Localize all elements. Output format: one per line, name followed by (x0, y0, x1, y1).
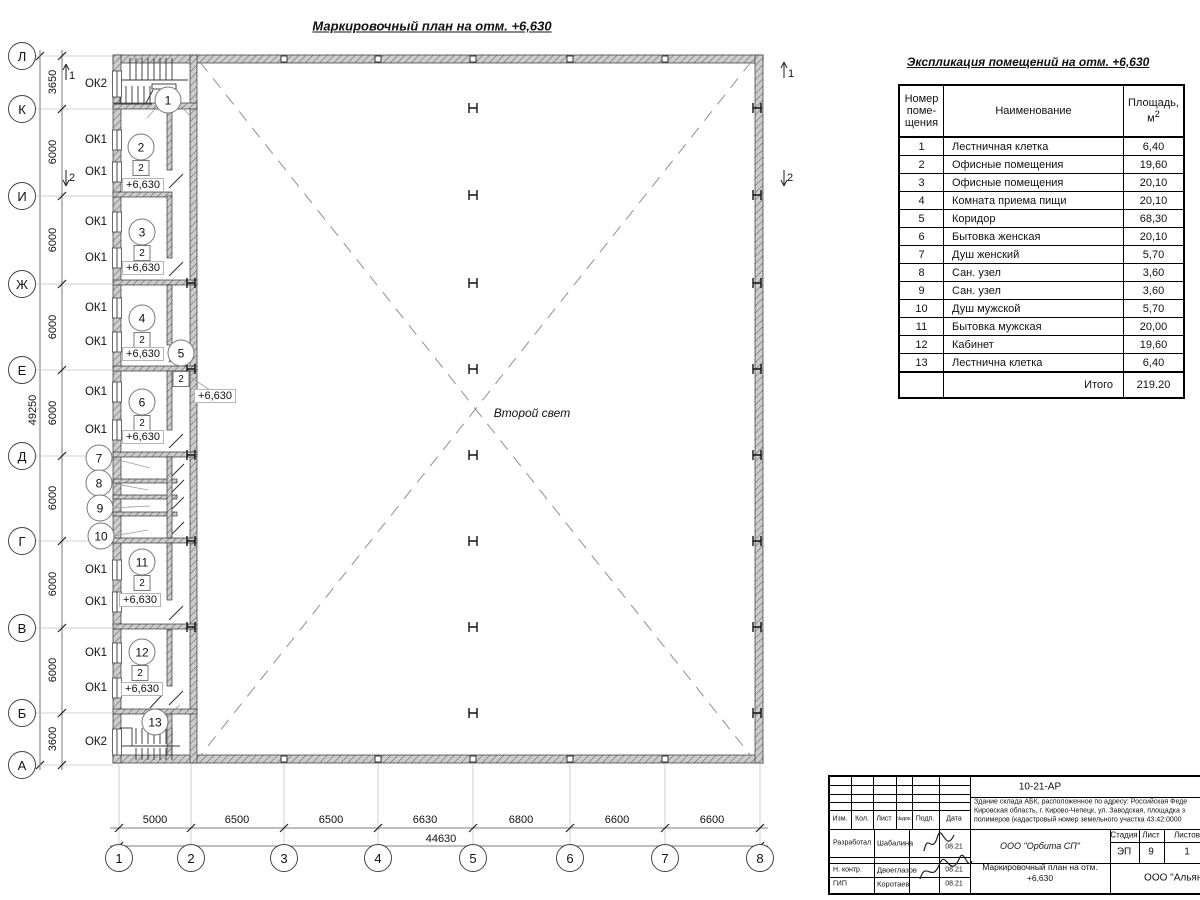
dimension-value: 6500 (225, 814, 249, 826)
room-name: Офисные помещения (944, 156, 1124, 174)
room-number: 11 (899, 318, 944, 336)
sheets-header: Листов (1174, 831, 1200, 840)
elevation-mark: +6,630 (194, 389, 236, 403)
window-mark-label: ОК1 (85, 647, 107, 659)
window-mark-label: ОК1 (85, 424, 107, 436)
rev-header-list: Лист (876, 816, 891, 823)
axis-label-8: 8 (746, 844, 774, 872)
explication-row: 12Кабинет19,60 (899, 336, 1184, 354)
window-mark-label: ОК1 (85, 336, 107, 348)
sheets-value: 1 (1184, 847, 1190, 858)
room-name: Лестнична клетка (944, 354, 1124, 373)
axis-label-И: И (8, 182, 36, 210)
total-label: Итого (944, 372, 1124, 398)
room-area: 5,70 (1124, 246, 1185, 264)
axis-label-6: 6 (556, 844, 584, 872)
dimension-value: 6630 (413, 814, 437, 826)
explication-row: 3Офисные помещения20,10 (899, 174, 1184, 192)
door-type-mark: 2 (133, 160, 150, 176)
window-mark-label: ОК1 (85, 302, 107, 314)
dimension-value: 6800 (509, 814, 533, 826)
sheet-title-line2: +6,630 (1027, 873, 1053, 883)
explication-row: 5Коридор68,30 (899, 210, 1184, 228)
dimension-value: 6500 (319, 814, 343, 826)
sheet-title-line1: Маркировочный план на отм. (982, 862, 1098, 872)
rev-header-data: Дата (946, 816, 962, 823)
second-light-label: Второй свет (494, 406, 570, 420)
section-mark-label: 1 (69, 70, 75, 82)
axis-label-А: А (8, 751, 36, 779)
room-mark-6: 6 (129, 389, 156, 416)
room-area: 19,60 (1124, 156, 1185, 174)
room-name: Сан. узел (944, 264, 1124, 282)
stage-header: Стадия (1110, 831, 1137, 840)
window-mark-label: ОК1 (85, 682, 107, 694)
room-mark-10: 10 (88, 523, 115, 550)
explication-row: 6Бытовка женская20,10 (899, 228, 1184, 246)
explication-title: Экспликация помещений на отм. +6,630 (907, 55, 1150, 69)
explication-row: 4Комната приема пищи20,10 (899, 192, 1184, 210)
dimension-total: 49250 (27, 395, 39, 426)
door-type-mark: 2 (134, 245, 151, 261)
window-mark-label: ОК1 (85, 216, 107, 228)
room-number: 8 (899, 264, 944, 282)
room-mark-12: 12 (129, 639, 156, 666)
room-number: 9 (899, 282, 944, 300)
room-area: 20,10 (1124, 174, 1185, 192)
explication-row: 9Сан. узел3,60 (899, 282, 1184, 300)
dimension-value: 3600 (47, 727, 59, 751)
room-mark-3: 3 (129, 219, 156, 246)
signature-icon (918, 827, 988, 893)
axis-label-4: 4 (364, 844, 392, 872)
dimension-value: 6000 (47, 401, 59, 425)
explication-row: 8Сан. узел3,60 (899, 264, 1184, 282)
elevation-mark: +6,630 (122, 347, 164, 361)
room-mark-2: 2 (128, 134, 155, 161)
room-name: Душ мужской (944, 300, 1124, 318)
room-number: 4 (899, 192, 944, 210)
dimension-total: 44630 (426, 833, 457, 845)
window-mark-label: ОК1 (85, 564, 107, 576)
room-mark-11: 11 (129, 549, 156, 576)
axis-label-В: В (8, 614, 36, 642)
axis-label-5: 5 (459, 844, 487, 872)
room-area: 20,00 (1124, 318, 1185, 336)
project-address-line3: полимеров (кадастровый номер земельного … (974, 817, 1182, 824)
section-mark-label: 1 (788, 68, 794, 80)
room-area: 19,60 (1124, 336, 1185, 354)
room-number: 2 (899, 156, 944, 174)
axis-label-Е: Е (8, 356, 36, 384)
elevation-mark: +6,630 (122, 430, 164, 444)
section-mark-label: 2 (787, 172, 793, 184)
header-line: Номер (904, 93, 939, 105)
door-type-mark: 2 (134, 415, 151, 431)
header-line: поме- (904, 105, 939, 117)
sheet-header: Лист (1142, 831, 1159, 840)
room-number: 6 (899, 228, 944, 246)
axis-label-3: 3 (270, 844, 298, 872)
elevation-mark: +6,630 (121, 682, 163, 696)
rev-header-ndok: №док. (896, 816, 912, 822)
room-area: 20,10 (1124, 192, 1185, 210)
door-type-mark: 2 (134, 575, 151, 591)
axis-label-1: 1 (105, 844, 133, 872)
rev-header-izm: Изм. (833, 816, 848, 823)
explication-row: 2Офисные помещения19,60 (899, 156, 1184, 174)
room-mark-9: 9 (87, 495, 114, 522)
plan-title: Маркировочный план на отм. +6,630 (312, 19, 551, 34)
role-developer: Разработал (833, 840, 871, 847)
elevation-mark: +6,630 (119, 593, 161, 607)
room-name: Кабинет (944, 336, 1124, 354)
role-ncontrol-name: Двоеглазов (877, 866, 917, 875)
axis-label-2: 2 (177, 844, 205, 872)
window-mark-label: ОК2 (85, 78, 107, 90)
room-number: 12 (899, 336, 944, 354)
header-line: щения (904, 117, 939, 129)
axis-label-К: К (8, 95, 36, 123)
dimension-value: 6000 (47, 228, 59, 252)
rev-header-podp: Подп. (916, 816, 935, 823)
room-name: Душ женский (944, 246, 1124, 264)
project-address-line2: Кировская область, г. Кирово-Чепецк, ул.… (974, 808, 1185, 815)
sheet-value: 9 (1148, 847, 1154, 858)
room-number: 3 (899, 174, 944, 192)
window-mark-label: ОК1 (85, 134, 107, 146)
role-gip-name: Коротаев (877, 880, 909, 889)
room-mark-1: 1 (155, 87, 182, 114)
room-name: Офисные помещения (944, 174, 1124, 192)
elevation-mark: +6,630 (122, 178, 164, 192)
window-mark-label: ОК2 (85, 736, 107, 748)
room-area: 5,70 (1124, 300, 1185, 318)
room-number: 7 (899, 246, 944, 264)
dimension-value: 6600 (700, 814, 724, 826)
project-address-line1: Здание склада АБК, расположенное по адре… (974, 799, 1187, 806)
header-line: м2 (1128, 109, 1179, 125)
section-mark-label: 2 (69, 172, 75, 184)
document-number: 10-21-АР (1019, 782, 1061, 793)
door-type-mark: 2 (173, 371, 190, 387)
column-header-number: Номер поме- щения (899, 85, 944, 137)
room-name: Бытовка женская (944, 228, 1124, 246)
room-area: 6,40 (1124, 137, 1185, 156)
room-mark-5: 5 (168, 340, 195, 367)
room-name: Сан. узел (944, 282, 1124, 300)
axis-label-Б: Б (8, 699, 36, 727)
area-unit: м (1147, 113, 1155, 125)
room-mark-8: 8 (86, 470, 113, 497)
explication-row: 7Душ женский5,70 (899, 246, 1184, 264)
axis-label-Г: Г (8, 527, 36, 555)
role-ncontrol: Н. контр. (833, 867, 862, 874)
window-mark-label: ОК1 (85, 596, 107, 608)
door-type-mark: 2 (132, 665, 149, 681)
room-number: 13 (899, 354, 944, 373)
explication-row: 13Лестнична клетка6,40 (899, 354, 1184, 373)
rev-header-kol: Кол. (855, 816, 869, 823)
room-area: 68,30 (1124, 210, 1185, 228)
explication-row: 1Лестничная клетка6,40 (899, 137, 1184, 156)
axis-label-Д: Д (8, 442, 36, 470)
area-sup: 2 (1155, 109, 1160, 119)
room-number: 1 (899, 137, 944, 156)
total-row: Итого 219.20 (899, 372, 1184, 398)
drawing-sheet: Маркировочный план на отм. +6,630 Второй… (0, 0, 1200, 900)
window-mark-label: ОК1 (85, 386, 107, 398)
window-mark-label: ОК1 (85, 166, 107, 178)
room-mark-13: 13 (142, 709, 169, 736)
room-area: 3,60 (1124, 282, 1185, 300)
room-name: Комната приема пищи (944, 192, 1124, 210)
role-gip: ГИП (833, 881, 847, 888)
design-company: ООО "Орбита СП" (1000, 841, 1080, 851)
elevation-mark: +6,630 (122, 261, 164, 275)
room-name: Коридор (944, 210, 1124, 228)
role-developer-name: Шабалина (877, 839, 913, 848)
room-area: 20,10 (1124, 228, 1185, 246)
explication-row: 10Душ мужской5,70 (899, 300, 1184, 318)
dimension-value: 6600 (605, 814, 629, 826)
dimension-value: 6000 (47, 486, 59, 510)
room-name: Лестничная клетка (944, 137, 1124, 156)
axis-label-7: 7 (651, 844, 679, 872)
explication-table: Номер поме- щения Наименование Площадь, … (898, 84, 1185, 399)
room-area: 3,60 (1124, 264, 1185, 282)
window-mark-label: ОК1 (85, 252, 107, 264)
title-block: Изм. Кол. Лист №док. Подп. Дата Разработ… (828, 775, 1200, 895)
total-value: 219.20 (1124, 372, 1185, 398)
column-header-name: Наименование (944, 85, 1124, 137)
axis-label-Л: Л (8, 42, 36, 70)
stage-value: ЭП (1117, 847, 1131, 858)
axis-label-Ж: Ж (8, 270, 36, 298)
explication-row: 11Бытовка мужская20,00 (899, 318, 1184, 336)
room-area: 6,40 (1124, 354, 1185, 373)
door-type-mark: 2 (134, 332, 151, 348)
room-number: 5 (899, 210, 944, 228)
dimension-value: 6000 (47, 658, 59, 682)
room-mark-4: 4 (129, 305, 156, 332)
dimension-value: 6000 (47, 140, 59, 164)
room-mark-7: 7 (86, 445, 113, 472)
dimension-value: 3650 (47, 70, 59, 94)
dimension-value: 5000 (143, 814, 167, 826)
dimension-value: 6000 (47, 572, 59, 596)
total-empty-cell (899, 372, 944, 398)
client-company: ООО "Альяно (1144, 873, 1200, 884)
room-number: 10 (899, 300, 944, 318)
room-name: Бытовка мужская (944, 318, 1124, 336)
column-header-area: Площадь, м2 (1124, 85, 1185, 137)
header-line: Площадь, (1128, 97, 1179, 109)
dimension-value: 6000 (47, 315, 59, 339)
